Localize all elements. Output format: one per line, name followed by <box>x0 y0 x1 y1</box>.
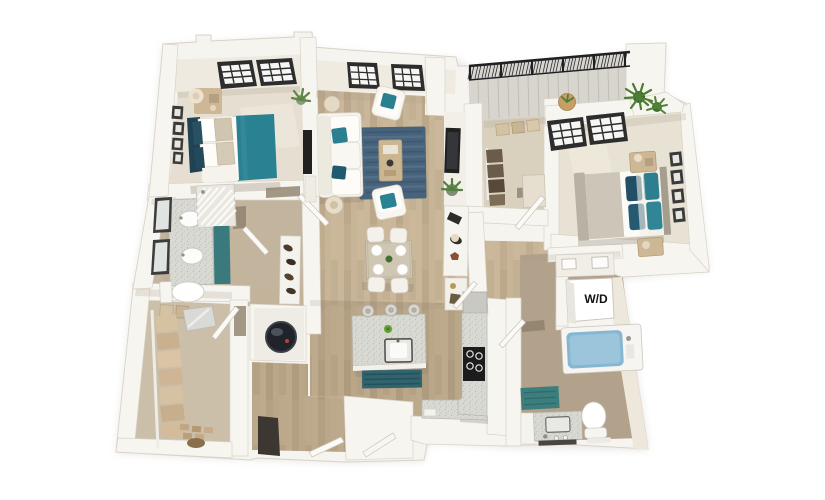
svg-text:W/D: W/D <box>584 292 608 306</box>
